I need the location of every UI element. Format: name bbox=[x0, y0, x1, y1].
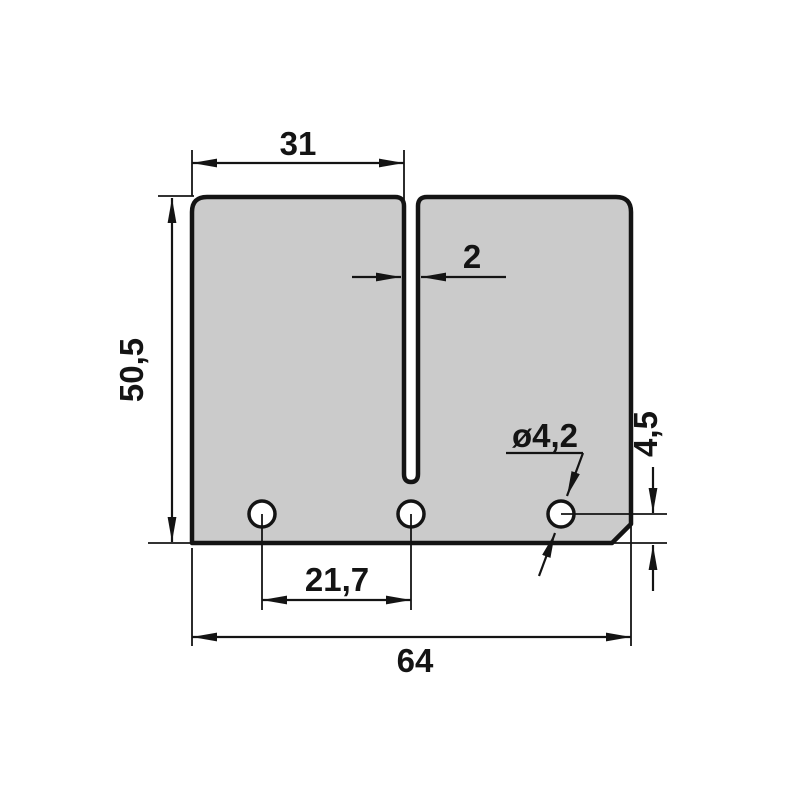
dim-height bbox=[148, 196, 194, 543]
dim-slot-width-label: 2 bbox=[463, 238, 481, 275]
dim-total-width-label: 64 bbox=[397, 642, 434, 679]
dimension-drawing: 31 2 50,5 21,7 64 4,5 ø4,2 bbox=[0, 0, 800, 800]
dim-top-width-label: 31 bbox=[280, 125, 317, 162]
plate-outline bbox=[192, 197, 631, 543]
dim-hole-spacing-label: 21,7 bbox=[305, 561, 369, 598]
dim-hole-offset-label: 4,5 bbox=[627, 411, 664, 457]
technical-drawing-canvas: 31 2 50,5 21,7 64 4,5 ø4,2 bbox=[0, 0, 800, 800]
dim-hole-diameter-label: ø4,2 bbox=[512, 417, 578, 454]
dim-height-label: 50,5 bbox=[113, 338, 150, 402]
